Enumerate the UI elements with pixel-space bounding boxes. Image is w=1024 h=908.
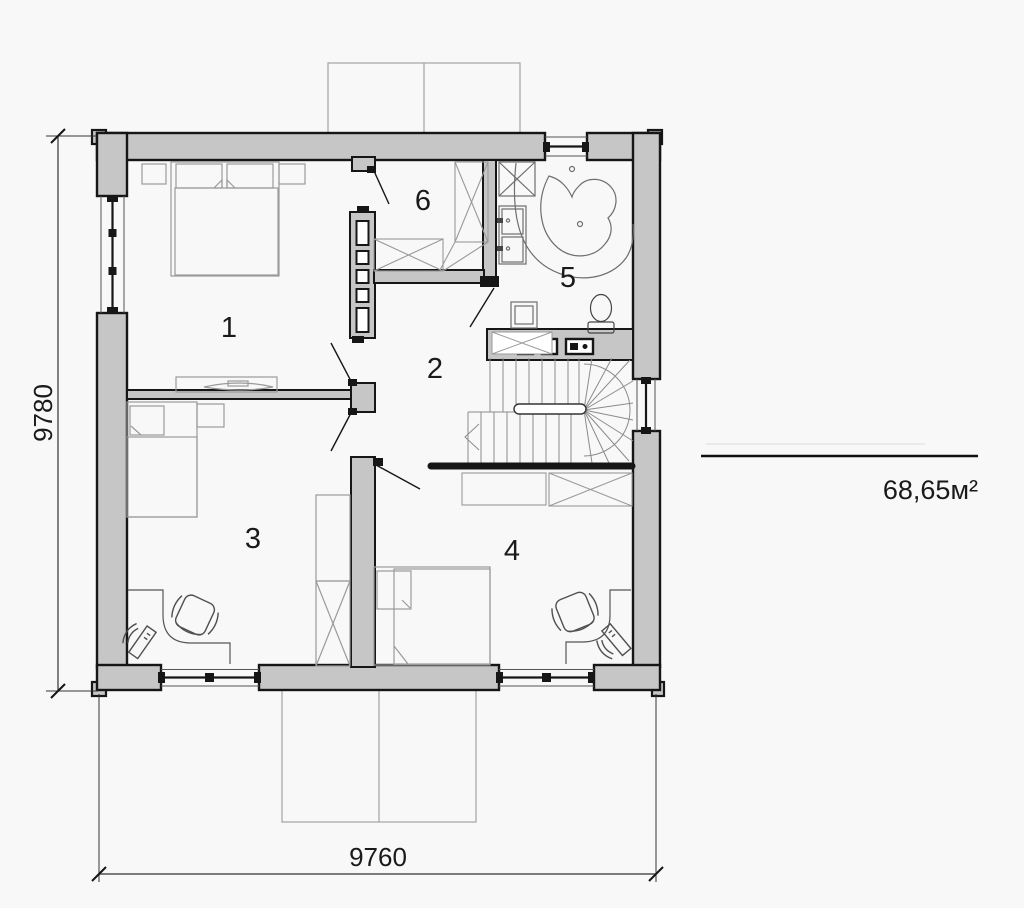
room-4-label: 4 bbox=[504, 535, 520, 567]
floor-plan-canvas: 1 2 3 4 5 6 9780 9760 68,65м² bbox=[0, 0, 1024, 908]
dimension-width-label: 9760 bbox=[349, 842, 407, 872]
room-1-label: 1 bbox=[221, 312, 237, 344]
dimension-height-label: 9780 bbox=[28, 384, 58, 442]
stair-handrail-center bbox=[514, 404, 586, 414]
tap-icon bbox=[497, 246, 503, 251]
bathroom-cabinet bbox=[492, 332, 552, 354]
room-5-label: 5 bbox=[560, 262, 576, 294]
tap-icon bbox=[497, 218, 503, 223]
shelf-partition-compartments bbox=[357, 221, 369, 332]
room-6-label: 6 bbox=[415, 185, 431, 217]
floor-plan-drawing: 1 2 3 4 5 6 9780 9760 68,65м² bbox=[0, 0, 1024, 908]
floor-area-label: 68,65м² bbox=[883, 475, 978, 505]
room-3-label: 3 bbox=[245, 523, 261, 555]
room-2-label: 2 bbox=[427, 353, 443, 385]
